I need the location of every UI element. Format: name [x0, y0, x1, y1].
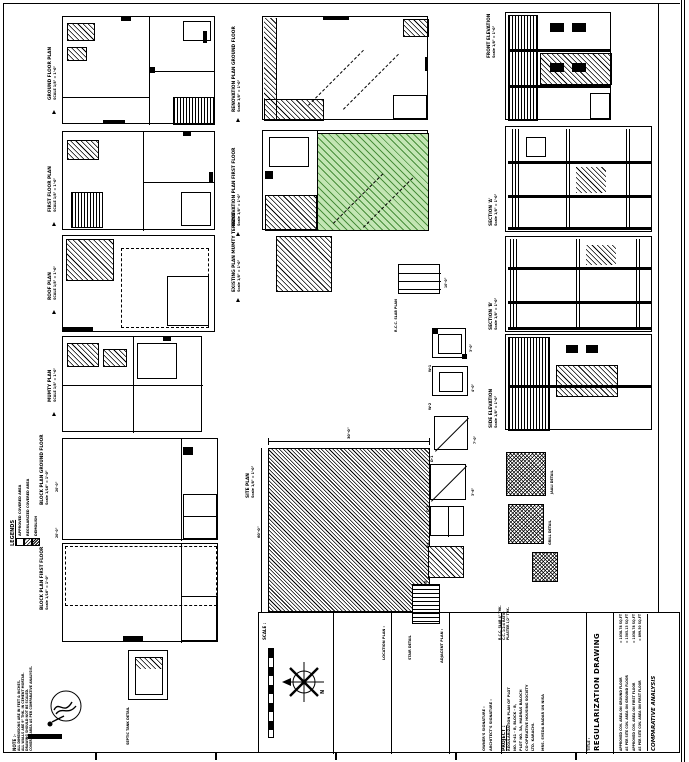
up-arrow-icon — [52, 222, 56, 226]
mumty-plan-label: MUMTY PLAN SCALE 1/8" = 1'-0" — [48, 368, 57, 402]
block-plan-first-label: BLOCK PLAN FIRST FLOOR Scale 1/16" = 1'-… — [40, 547, 49, 610]
door-outline — [590, 93, 610, 119]
hatch-wall — [636, 239, 642, 327]
room-outline — [137, 343, 177, 379]
mumty-plan-drawing — [62, 336, 202, 432]
block-plan-first-drawing — [62, 543, 218, 642]
jaali-detail-label: JAALI DETAIL — [550, 470, 554, 494]
drawing-scale: Scale 1/8" = 1'-0" — [251, 466, 255, 498]
grill-detail-drawing — [508, 504, 544, 544]
dimension-text: 30'-0" — [347, 427, 351, 439]
slab-band — [508, 327, 651, 330]
dimension-text: 4'-0" — [472, 384, 476, 392]
project-line: LTD. KARACHI. — [531, 614, 537, 751]
title-header: TITLE : — [587, 614, 591, 751]
column-block — [121, 17, 131, 21]
wall-band — [63, 327, 93, 332]
column-block — [183, 447, 193, 455]
gate-detail-drawing — [428, 546, 464, 578]
cell-divider — [391, 613, 392, 754]
architect-signature-label: ARCHITECT'S SIGNATURE : — [489, 614, 493, 751]
border-right-line-1 — [681, 0, 682, 762]
dimension-text: 20'-0" — [56, 528, 60, 538]
room-outline — [167, 276, 209, 326]
dimension-text: 20'-0" — [56, 482, 60, 492]
stair-treads — [173, 97, 215, 125]
dimension-line — [268, 441, 430, 442]
roof-plan-drawing — [62, 235, 215, 332]
regularized-area-swatch — [24, 538, 32, 546]
drawing-scale: Scale 1/16" = 1'-0" — [45, 434, 49, 505]
drawing-scale: Scale 1/16" = 1'-0" — [45, 547, 49, 610]
room-outline — [183, 21, 211, 41]
hatch-area — [66, 239, 114, 281]
fold-tick — [455, 753, 457, 760]
front-elevation-label: FRONT ELEVATION Scale 1/8" = 1'-0" — [487, 14, 496, 58]
site-plan-drawing — [268, 448, 430, 612]
side-elevation-label: SIDE ELEVATION Scale 1/8" = 1'-0" — [489, 389, 498, 428]
drawing-scale: Scale 1/8" = 1'-0" — [492, 14, 496, 58]
first-floor-plan-drawing — [62, 131, 215, 230]
approved-area-swatch — [16, 538, 24, 546]
dimension-text: 3'-6" — [472, 488, 476, 496]
room-outline — [181, 596, 217, 641]
comparative-value: = 899.50 SQ.FT — [637, 614, 643, 641]
frame-right-inner-line — [658, 3, 659, 613]
legends-panel: LEGENDS APPROVED COVERED AREA REGULARIZE… — [10, 450, 42, 546]
hatch-wall — [512, 129, 520, 227]
hatch-area — [403, 19, 429, 37]
up-arrow-icon — [236, 298, 240, 302]
hatch-area — [103, 349, 127, 367]
x-line — [435, 418, 469, 452]
section-a-drawing — [505, 126, 652, 232]
frame-top-line — [3, 3, 680, 4]
adjacent-plan-header: ADJACENT PLAN : — [440, 629, 444, 663]
wall-line — [63, 97, 149, 98]
comparative-analysis-cell: APPROVED COV. AREA ON GROUND FLOOR = 103… — [614, 614, 678, 751]
hatch-wall — [566, 129, 572, 227]
small-detail-square — [532, 552, 558, 582]
legend-item: DEMOLISH — [32, 450, 40, 546]
roof-plan-label: ROOF PLAN SCALE 1/8" = 1'-0" — [48, 266, 57, 300]
wall-line — [181, 439, 182, 541]
room-outline — [181, 192, 211, 226]
drawing-scale: Scale 1/8" = 1'-0" — [494, 194, 498, 226]
ventilator-detail-v1 — [430, 506, 464, 536]
front-elevation-drawing — [505, 12, 611, 120]
door-detail-d2 — [430, 464, 466, 500]
detail-inner — [438, 334, 462, 354]
septic-tank-detail-drawing — [128, 650, 168, 700]
detail-line — [448, 507, 449, 537]
section-a-label: SECTION 'A' Scale 1/8" = 1'-0" — [489, 194, 498, 226]
opening-outline — [526, 137, 546, 157]
up-arrow-icon — [52, 412, 56, 416]
drawing-sheet: GROUND FLOOR PLAN SCALE 1/8" = 1'-0" FIR… — [0, 0, 689, 762]
slab-band — [508, 227, 651, 230]
corner-block — [433, 329, 438, 334]
wall-line — [149, 71, 215, 72]
ground-floor-plan-drawing — [62, 16, 215, 124]
renovation-plan-ground-drawing — [262, 16, 428, 120]
existing-mumty-drawing — [276, 236, 332, 292]
dimension-text: 3'-0" — [470, 344, 474, 352]
slab-band — [508, 85, 610, 88]
drawing-scale: Scale 1/8" = 1'-0" — [494, 298, 498, 330]
detail-line — [399, 289, 441, 290]
corner-block — [462, 354, 467, 359]
door-detail-d1 — [434, 416, 468, 450]
hatch-wall — [576, 239, 582, 327]
window-block — [550, 23, 564, 32]
hatch-wall — [508, 337, 550, 431]
column-block — [103, 120, 125, 124]
x-line — [431, 466, 467, 502]
legend-label: APPROVED COVERED AREA — [18, 485, 22, 536]
fold-tick — [575, 753, 577, 760]
comparative-label: AS PER SITE COV. AREA ON FIRST FLOOR — [637, 680, 643, 751]
hatch-area — [67, 343, 99, 367]
legend-item: APPROVED COVERED AREA — [16, 450, 24, 546]
dimension-tick — [429, 438, 430, 445]
drawing-scale: Scale 1/8" = 1'-0" — [237, 212, 241, 292]
north-compass-icon — [280, 658, 324, 706]
section-b-label: SECTION 'B' Scale 1/8" = 1'-0" — [489, 298, 498, 330]
column-block — [183, 132, 191, 136]
hatch-wall — [510, 239, 518, 327]
hatch-area — [556, 365, 618, 397]
section-b-drawing — [505, 236, 652, 332]
column-block — [425, 57, 428, 71]
slab-band — [508, 385, 651, 388]
side-elevation-drawing — [505, 334, 652, 430]
wall-band — [123, 636, 143, 641]
room-outline — [393, 95, 427, 119]
cell-divider — [333, 613, 334, 754]
signature-cell: OWNER'S SIGNATURE : ARCHITECT'S SIGNATUR… — [452, 614, 498, 751]
legend-label: DEMOLISH — [34, 516, 38, 536]
slab-band — [508, 49, 610, 52]
demolish-swatch — [32, 538, 40, 546]
up-arrow-icon — [236, 118, 240, 122]
wall-band — [323, 17, 349, 20]
window-block — [586, 345, 598, 353]
hatch-area — [135, 657, 163, 669]
detail-line — [399, 281, 441, 282]
door-d1-label: D-1 — [430, 456, 434, 462]
ground-floor-plan-label: GROUND FLOOR PLAN SCALE 1/8" = 1'-0" — [48, 47, 57, 100]
legend-label: REGULARIZED COVERED AREA — [26, 479, 30, 536]
comparative-row: AS PER SITE COV. AREA ON FIRST FLOOR = 8… — [637, 614, 643, 751]
north-label: N — [320, 690, 326, 694]
owner-name: MRS. SYEDA BADAR UN NISA — [541, 614, 547, 751]
hatch-area — [264, 99, 324, 121]
stair-treads — [71, 192, 103, 228]
drawing-scale: Scale 1/8" = 1'-0" — [237, 26, 241, 112]
rcc-slab-detail-label: R.C.C. SLAB PLAN — [394, 299, 398, 332]
detail-inner — [439, 372, 463, 392]
project-cell: PROJECT : REGULARIZATION PLAN OF PLOT NO… — [502, 614, 583, 751]
fold-tick — [95, 753, 97, 760]
wall-line — [183, 516, 217, 517]
legend-item: REGULARIZED COVERED AREA — [24, 450, 32, 546]
drawing-scale: SCALE 1/8" = 1'-0" — [53, 266, 57, 300]
window-detail-w2 — [432, 366, 468, 396]
window-w2-label: W-2 — [428, 403, 432, 410]
hatch-wall — [626, 129, 632, 227]
fold-tick — [215, 753, 217, 760]
dimension-text: 10'-0" — [445, 278, 449, 288]
hatch-area — [67, 23, 95, 41]
fold-tick — [335, 753, 337, 760]
up-arrow-icon — [52, 110, 56, 114]
hatch-wall — [508, 15, 538, 121]
up-arrow-icon — [52, 310, 56, 314]
hatch-area — [67, 47, 87, 61]
renovation-plan-ground-label: RENOVATION PLAN GROUND FLOOR Scale 1/8" … — [232, 26, 241, 112]
window-detail-w1 — [432, 328, 466, 358]
architect-stamp-icon — [44, 686, 84, 730]
site-plan-label: SITE PLAN Scale 1/8" = 1'-0" — [246, 466, 255, 498]
drawing-scale: SCALE 1/8" = 1'-0" — [53, 166, 57, 212]
graphic-scale-bar — [268, 648, 274, 738]
drawing-scale: SCALE 1/8" = 1'-0" — [53, 47, 57, 100]
window-block — [566, 345, 578, 353]
hatch-area — [265, 195, 317, 231]
comparative-title: COMPARATIVE ANALYSIS — [647, 614, 657, 751]
existing-mumty-label: EXISTING PLAN MUMTY TERRACE Scale 1/8" =… — [232, 212, 241, 292]
window-block — [550, 63, 564, 72]
drawing-scale: Scale 1/8" = 1'-0" — [494, 389, 498, 428]
signature-mark — [28, 734, 62, 739]
first-floor-plan-label: FIRST FLOOR PLAN SCALE 1/8" = 1'-0" — [48, 166, 57, 212]
rcc-slab-detail-drawing — [398, 264, 440, 294]
block-plan-ground-drawing — [62, 438, 218, 540]
room-outline — [269, 137, 309, 167]
dimension-tick — [268, 438, 269, 445]
jaali-detail-drawing — [506, 452, 546, 496]
renovation-plan-first-drawing — [262, 130, 428, 230]
frame-left-line — [3, 3, 4, 753]
hatch-area — [586, 245, 616, 265]
column-block — [149, 67, 155, 73]
window-block — [572, 23, 586, 32]
border-right-line-2 — [684, 0, 685, 762]
window-block — [572, 63, 586, 72]
dimension-text: 60'-0" — [257, 526, 261, 538]
drawing-scale: SCALE 1/8" = 1'-0" — [53, 368, 57, 402]
wall-line — [317, 131, 318, 231]
title-cell: TITLE : REGULARIZATION DRAWING — [587, 614, 610, 751]
column-block — [209, 172, 213, 182]
cell-divider — [449, 613, 450, 754]
drawing-title-main: REGULARIZATION DRAWING — [593, 614, 601, 751]
wall-line — [63, 385, 203, 386]
septic-tank-detail-label: SEPTIC TANK DETAIL — [126, 707, 130, 745]
detail-line — [399, 273, 441, 274]
scale-cell-header: SCALE : — [262, 623, 267, 640]
dimension-text: 7'-0" — [474, 436, 478, 444]
owner-signature-label: OWNER'S SIGNATURE : — [482, 614, 486, 751]
grill-detail-label: GRILL DETAIL — [548, 520, 552, 545]
hatch-area — [67, 140, 99, 160]
location-plan-header: LOCATION PLAN : — [382, 626, 386, 660]
column-block — [265, 171, 273, 179]
column-block — [163, 337, 171, 341]
wall-line — [143, 182, 215, 183]
hatch-area — [576, 167, 606, 193]
